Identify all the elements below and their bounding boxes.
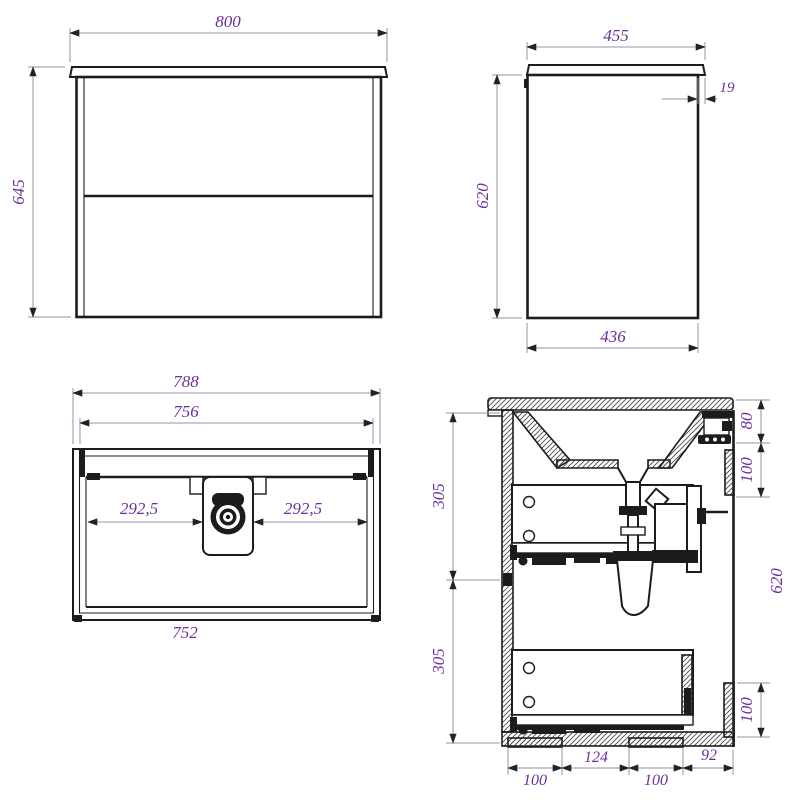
side-wall-clip — [524, 79, 529, 88]
section-countertop — [488, 398, 733, 410]
dim-section-upper-drawer: 305 — [429, 483, 448, 510]
side-countertop — [527, 65, 705, 75]
dim-section-upper-bracket: 100 — [737, 457, 756, 483]
dim-section-bottom-a: 100 — [523, 772, 547, 789]
front-countertop — [70, 67, 387, 77]
dim-plan-outer-width: 788 — [173, 372, 199, 391]
siphon-bottle-trap — [617, 560, 653, 615]
dim-plan-bottom-width: 752 — [172, 623, 198, 642]
dim-section-bottom-b: 124 — [584, 749, 608, 766]
dim-front-height: 645 — [9, 179, 28, 205]
dim-section-lower-drawer: 305 — [429, 648, 448, 675]
plan-foot-right — [371, 615, 379, 622]
plan-clip-right — [353, 473, 366, 480]
technical-drawing-canvas: 800 645 455 19 620 — [0, 0, 800, 800]
section-lower-drawer — [512, 650, 693, 715]
dim-side-top-width: 455 — [603, 26, 629, 45]
plan-drain-bracket — [190, 477, 266, 555]
section-washbasin — [513, 412, 714, 482]
dim-plan-center-left: 292,5 — [120, 499, 158, 518]
drawing-svg: 800 645 455 19 620 — [0, 0, 800, 800]
front-dimensions: 800 645 — [9, 12, 387, 317]
dim-side-bottom-width: 436 — [600, 327, 626, 346]
wall-mount-plate-top — [725, 450, 734, 495]
dim-section-bottom-c: 100 — [644, 772, 668, 789]
dim-section-bottom-d: 92 — [701, 747, 717, 764]
dim-front-width: 800 — [215, 12, 241, 31]
dim-plan-center-right: 292,5 — [284, 499, 322, 518]
dim-section-height: 620 — [767, 568, 786, 594]
section-foot-right — [629, 738, 683, 747]
dim-section-lower-bracket: 100 — [737, 697, 756, 723]
dim-plan-inner-width: 756 — [173, 402, 199, 421]
front-cabinet-body — [77, 77, 382, 317]
section-mid-clip — [503, 573, 512, 586]
plan-clip-left — [87, 473, 100, 480]
plan-foot-left — [74, 615, 82, 622]
drain-hole-icon — [211, 500, 246, 535]
wall-mount-plate-bottom — [724, 683, 734, 737]
side-view: 455 19 620 436 — [473, 26, 735, 353]
dim-section-top-offset: 80 — [737, 412, 756, 430]
dim-side-overhang: 19 — [720, 80, 736, 96]
section-foot-left — [508, 738, 562, 747]
plan-view: 788 756 292,5 292,5 752 — [73, 372, 380, 642]
section-view: 305 305 80 100 620 100 100 1 — [429, 398, 786, 789]
section-tap-bracket — [698, 411, 734, 444]
side-cabinet-body — [524, 75, 698, 318]
front-view: 800 645 — [9, 12, 387, 317]
dim-side-height: 620 — [473, 183, 492, 209]
